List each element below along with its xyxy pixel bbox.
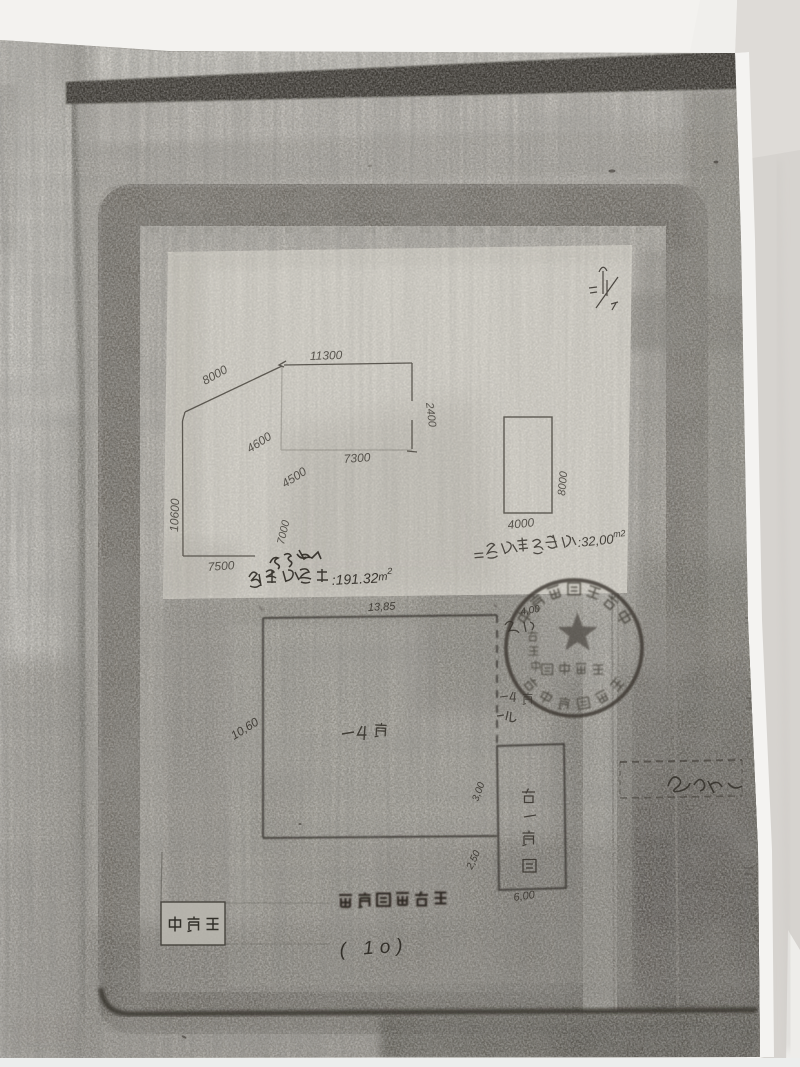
- svg-text:7300: 7300: [343, 450, 371, 466]
- svg-text:7500: 7500: [207, 558, 235, 574]
- svg-text:8000: 8000: [556, 470, 570, 496]
- svg-text:10600: 10600: [167, 498, 182, 532]
- svg-text:4000: 4000: [507, 515, 535, 532]
- svg-text:11300: 11300: [310, 348, 343, 363]
- svg-text:13,85: 13,85: [368, 601, 397, 614]
